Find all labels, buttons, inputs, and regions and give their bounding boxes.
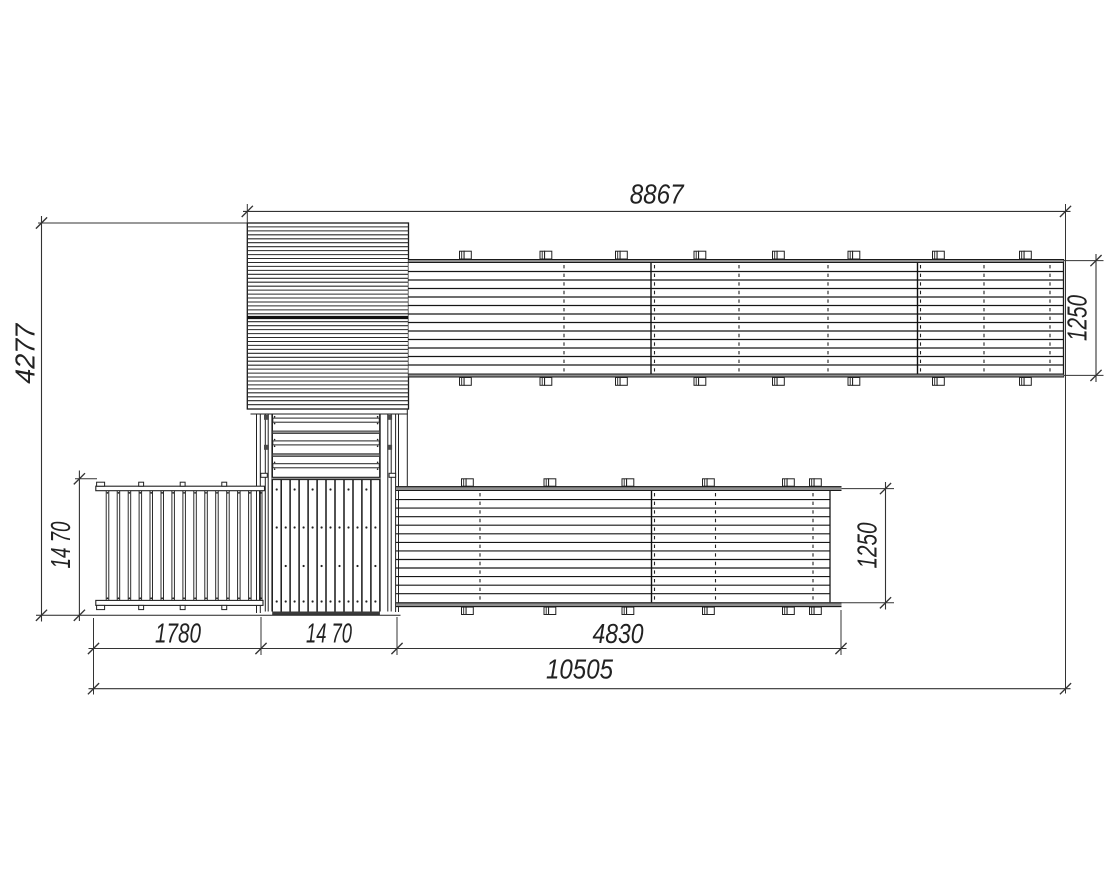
svg-text:14 70: 14 70: [306, 618, 352, 649]
svg-text:4277: 4277: [10, 322, 41, 383]
svg-text:4830: 4830: [593, 618, 644, 649]
svg-text:1780: 1780: [155, 618, 201, 649]
svg-text:1250: 1250: [1062, 295, 1093, 341]
svg-text:14 70: 14 70: [45, 521, 76, 568]
svg-text:1250: 1250: [852, 522, 883, 568]
svg-text:8867: 8867: [630, 179, 685, 210]
svg-text:10505: 10505: [546, 654, 613, 685]
